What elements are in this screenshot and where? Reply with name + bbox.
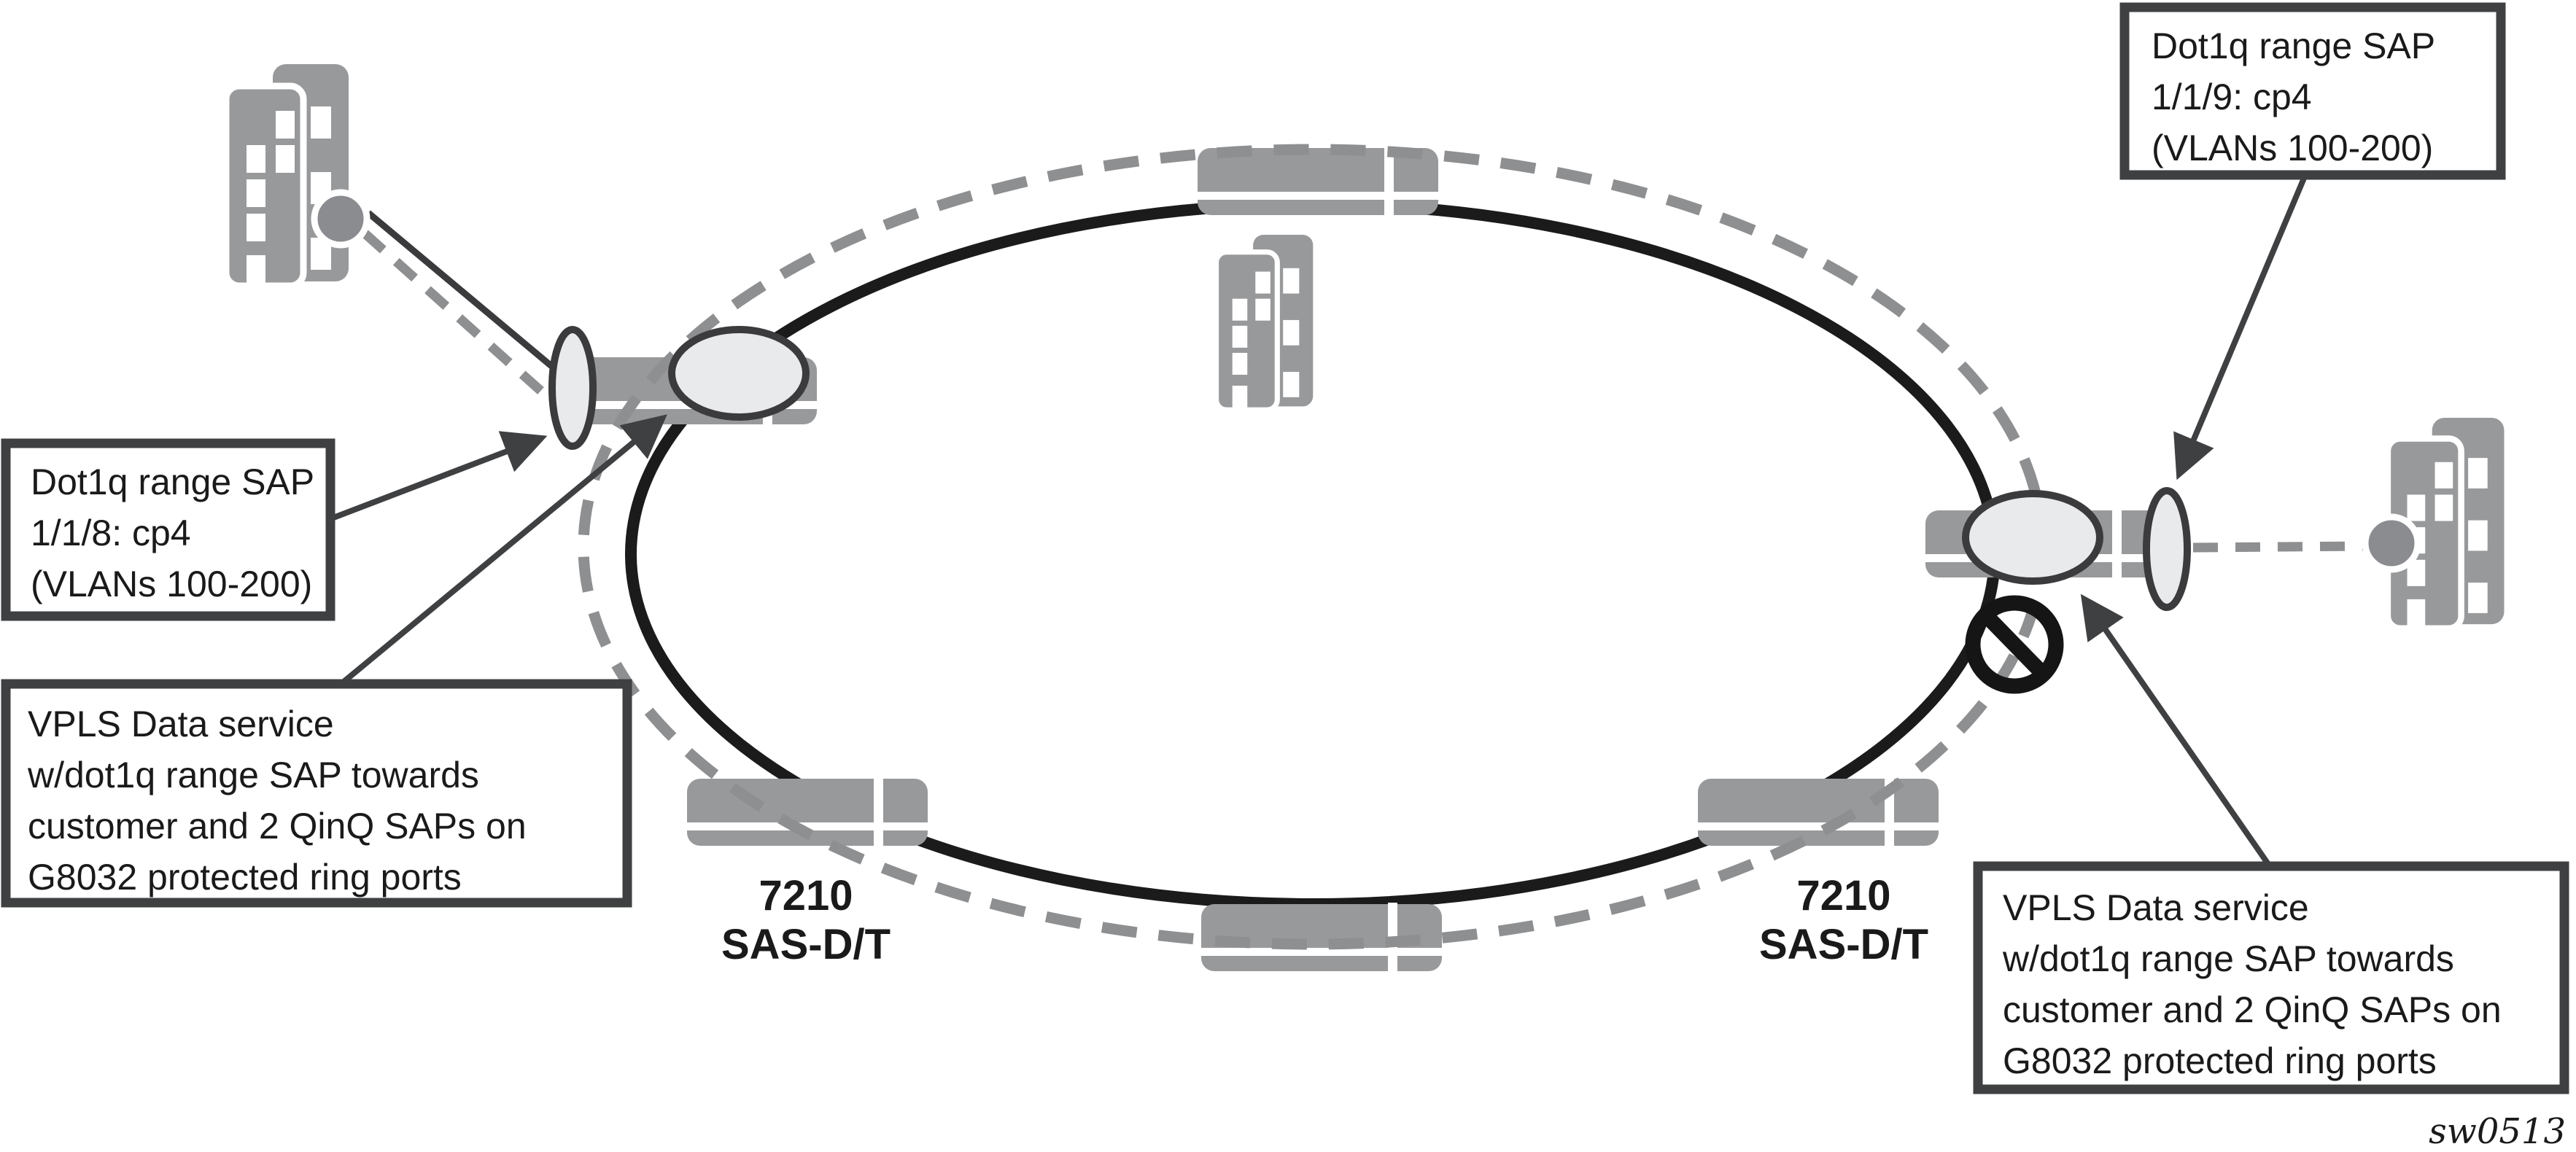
figure-id: sw0513 (2429, 1111, 2566, 1152)
callout-left-dot1q: Dot1q range SAP 1/1/8: cp4 (VLANs 100-20… (6, 443, 330, 616)
left-node-label-line2: SAS-D/T (721, 921, 891, 968)
callout-left-dot1q-line2: 1/1/8: cp4 (31, 513, 191, 553)
arrow-left-vpls-to-node (343, 419, 662, 682)
callout-left-vpls-line4: G8032 protected ring ports (28, 857, 462, 898)
right-customer-port-dot-icon (2365, 517, 2418, 569)
g8032-ring-diagram: Dot1q range SAP 1/1/8: cp4 (VLANs 100-20… (0, 0, 2576, 1152)
left-ring-node-icon (672, 330, 806, 417)
right-node-label-line2: SAS-D/T (1759, 921, 1928, 968)
left-customer-port-dot-icon (314, 192, 367, 245)
center-building-icon (1217, 235, 1314, 410)
callout-right-vpls-line2: w/dot1q range SAP towards (2002, 938, 2454, 979)
callout-left-vpls-line1: VPLS Data service (28, 704, 334, 744)
callout-right-vpls-line4: G8032 protected ring ports (2003, 1040, 2437, 1081)
right-customer-link-dashed (2193, 546, 2365, 548)
right-sap-port-lens-icon (2146, 491, 2187, 607)
callout-right-dot1q-line2: 1/1/9: cp4 (2152, 77, 2312, 117)
left-building-icon (226, 64, 349, 286)
callout-right-dot1q-line1: Dot1q range SAP (2152, 26, 2435, 66)
callout-right-dot1q-line3: (VLANs 100-200) (2152, 128, 2433, 168)
arrow-left-dot1q-to-port (330, 438, 541, 519)
ring-link-bottom-right (1698, 777, 1939, 847)
right-ring-node-icon (1966, 494, 2100, 581)
arrow-right-dot1q-to-port (2179, 176, 2305, 474)
left-customer-link-solid (368, 213, 560, 373)
right-node-label-line1: 7210 (1796, 872, 1890, 919)
callout-right-vpls-line1: VPLS Data service (2003, 887, 2309, 928)
diagram-canvas: Dot1q range SAP 1/1/8: cp4 (VLANs 100-20… (0, 0, 2576, 1152)
left-node-label-line1: 7210 (759, 872, 853, 919)
left-node-label: 7210 SAS-D/T (721, 872, 891, 968)
left-customer-link-dashed (365, 233, 565, 413)
right-node-label: 7210 SAS-D/T (1759, 872, 1928, 968)
callout-right-dot1q: Dot1q range SAP 1/1/9: cp4 (VLANs 100-20… (2125, 7, 2501, 175)
callout-left-dot1q-line3: (VLANs 100-200) (31, 564, 312, 604)
arrow-right-vpls-to-node (2084, 599, 2270, 866)
callout-right-vpls-line3: customer and 2 QinQ SAPs on (2003, 989, 2502, 1030)
callout-left-vpls-line2: w/dot1q range SAP towards (27, 755, 479, 795)
left-sap-port-lens-icon (552, 330, 593, 446)
callout-left-vpls-line3: customer and 2 QinQ SAPs on (28, 806, 527, 847)
callout-left-dot1q-line1: Dot1q range SAP (31, 462, 314, 502)
callout-left-vpls: VPLS Data service w/dot1q range SAP towa… (6, 684, 627, 903)
blocked-port-icon (1973, 603, 2056, 686)
callout-right-vpls: VPLS Data service w/dot1q range SAP towa… (1978, 866, 2564, 1089)
